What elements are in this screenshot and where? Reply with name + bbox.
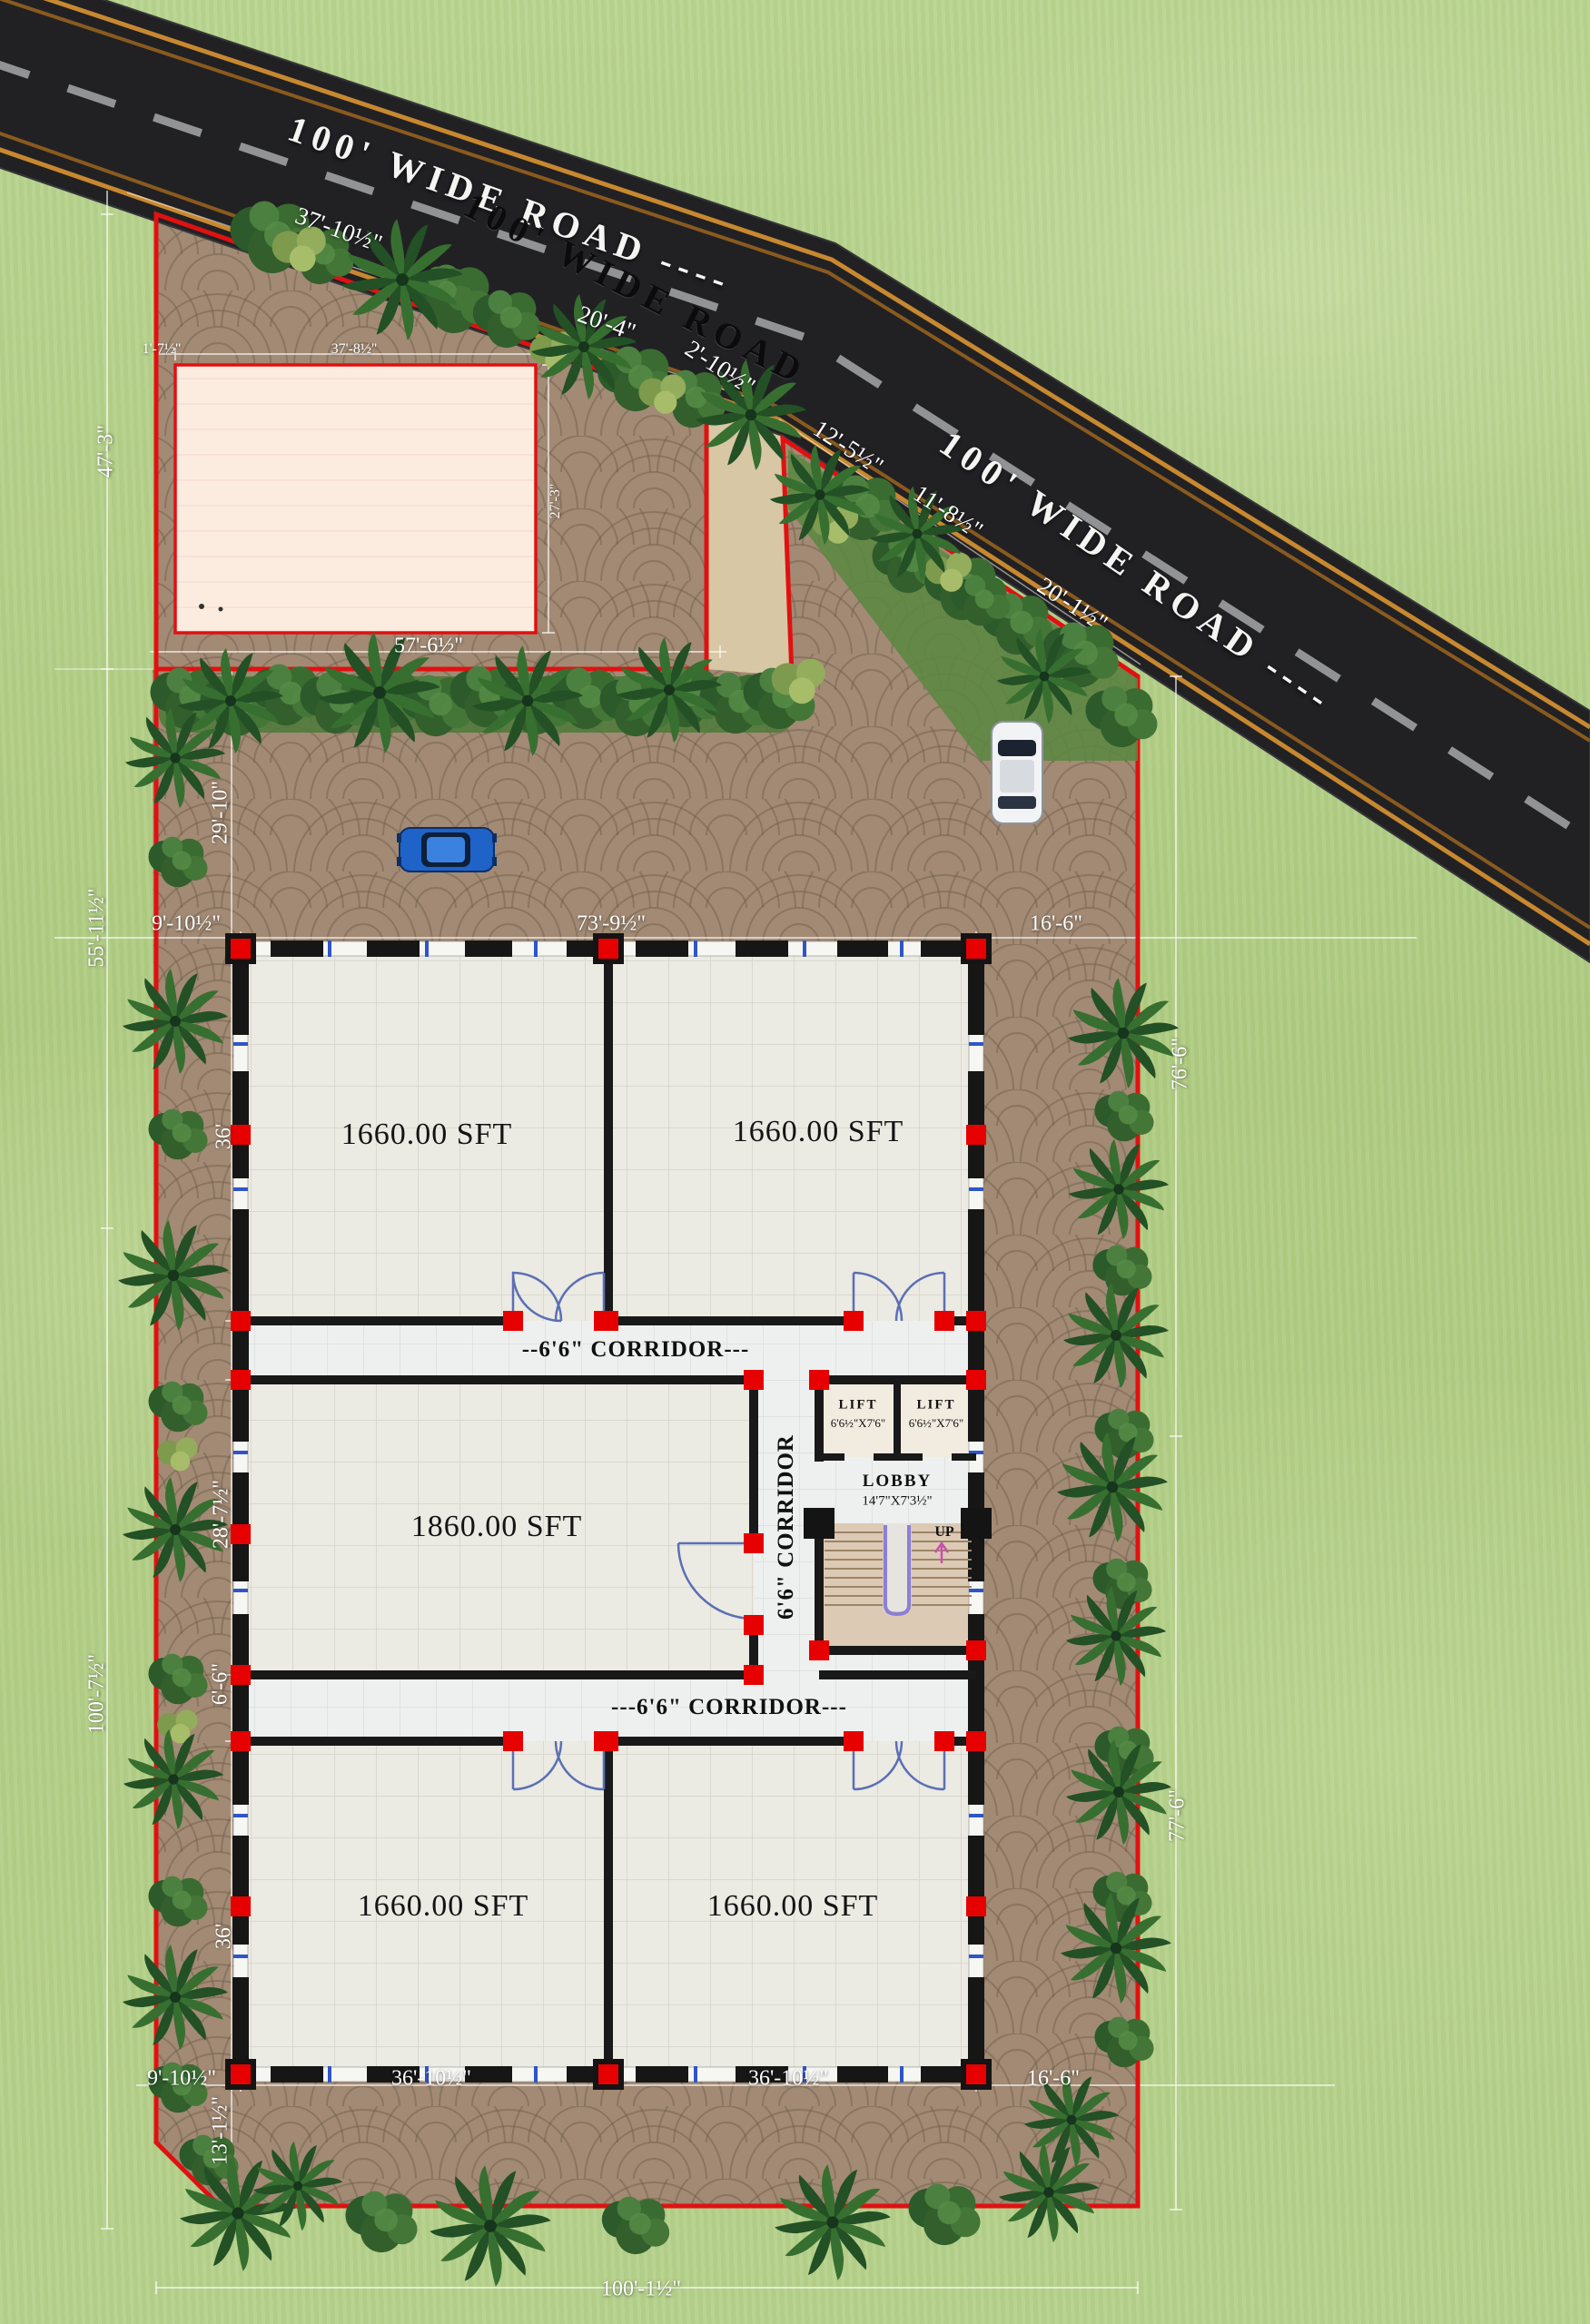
label-site-dims-18: 36'-10½" xyxy=(391,2067,471,2092)
label-building-lobby-name: LOBBY xyxy=(863,1472,933,1492)
label-site-dims-5: 29'-10" xyxy=(209,781,233,844)
label-building-stair_up: UP xyxy=(934,1524,953,1541)
label-building-lifts-0-name: LIFT xyxy=(838,1398,877,1413)
plan-labels: 100' WIDE ROAD ----100' WIDE ROAD100' WI… xyxy=(0,0,1590,2324)
label-road-labels-1: 100' WIDE ROAD xyxy=(457,183,814,393)
label-building-rooms-4-label: 1660.00 SFT xyxy=(707,1889,879,1924)
label-site-dims-9: 16'-6" xyxy=(1030,912,1082,937)
label-site-dims-17: 9'-10½" xyxy=(147,2067,216,2092)
label-site-dims-11: 36' xyxy=(212,1124,237,1149)
label-building-corridors-1: 6'6" CORRIDOR xyxy=(774,1434,799,1620)
label-building-rooms-1-label: 1660.00 SFT xyxy=(733,1115,904,1149)
label-building-lifts-0-size: 6'6½"X7'6" xyxy=(831,1416,885,1431)
site-plan-canvas: 100' WIDE ROAD ----100' WIDE ROAD100' WI… xyxy=(0,0,1590,2324)
label-site-dims-10: 76'-6" xyxy=(1169,1038,1193,1090)
label-site-dims-0: 1'-7½" xyxy=(143,341,182,358)
label-site-dims-2: 27'-3" xyxy=(548,484,564,519)
label-site-dims-21: 13'-1½" xyxy=(209,2096,233,2165)
label-building-rooms-3-label: 1660.00 SFT xyxy=(358,1889,529,1924)
label-site-dims-19: 36'-10½" xyxy=(748,2067,828,2092)
label-road-dims-0: 37'-10½" xyxy=(291,202,386,258)
label-site-dims-1: 37'-8½" xyxy=(331,341,378,358)
label-road-labels-2: 100' WIDE ROAD ---- xyxy=(932,422,1342,723)
label-site-dims-12: 28'-7½" xyxy=(210,1480,234,1549)
label-road-dims-5: 20'-1½" xyxy=(1032,572,1113,638)
label-building-lifts-1-size: 6'6½"X7'6" xyxy=(909,1416,963,1431)
label-building-rooms-2-label: 1860.00 SFT xyxy=(411,1510,583,1544)
label-site-dims-8: 73'-9½" xyxy=(577,912,646,937)
label-site-dims-13: 6'-6" xyxy=(209,1663,233,1705)
label-building-corridors-2: ---6'6" CORRIDOR--- xyxy=(611,1695,847,1720)
label-road-dims-3: 12'-5½" xyxy=(808,415,889,481)
label-building-rooms-0-label: 1660.00 SFT xyxy=(341,1118,513,1152)
label-site-dims-6: 55'-11½" xyxy=(85,888,110,967)
label-road-dims-4: 11'-8½" xyxy=(908,479,988,545)
label-site-dims-14: 100'-7½" xyxy=(85,1654,110,1734)
label-site-dims-7: 9'-10½" xyxy=(152,912,221,937)
label-building-lifts-1-name: LIFT xyxy=(916,1398,955,1413)
label-site-dims-16: 36' xyxy=(212,1924,237,1949)
label-site-dims-20: 16'-6" xyxy=(1027,2067,1080,2092)
label-building-corridors-0: --6'6" CORRIDOR--- xyxy=(522,1337,750,1363)
label-site-dims-15: 77'-6" xyxy=(1166,1789,1190,1842)
label-site-dims-4: 57'-6½" xyxy=(394,635,463,659)
label-site-dims-3: 47'-3" xyxy=(94,425,119,478)
label-site-dims-22: 100'-1½" xyxy=(601,2278,681,2302)
label-building-lobby-size: 14'7"X7'3½" xyxy=(862,1494,932,1510)
